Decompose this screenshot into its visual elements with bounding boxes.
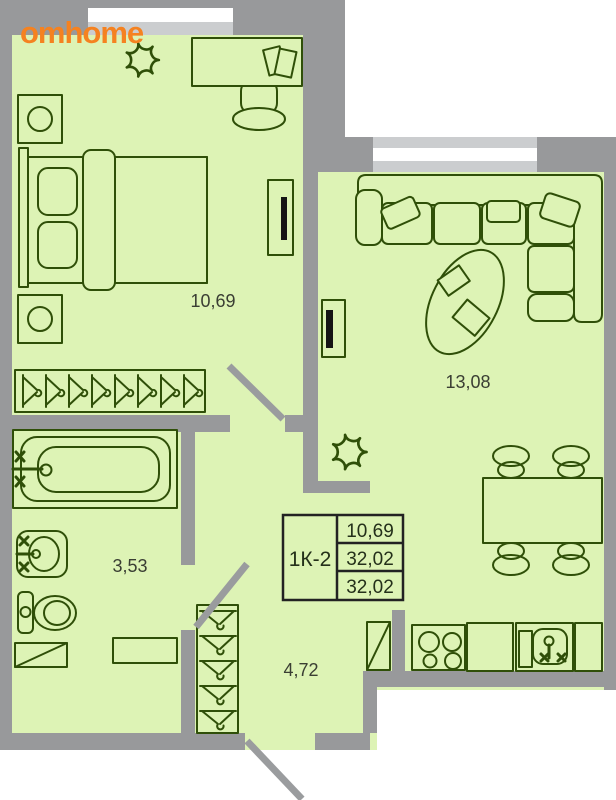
- desk-chair: [233, 80, 285, 130]
- unit-room-area: 10,69: [346, 521, 394, 542]
- floorplan-page: 1К-2 10,69 32,02 32,02 10,69 13,08 3,53 …: [0, 0, 616, 800]
- brand-logo: omhome: [20, 15, 144, 50]
- living-area-label: 13,08: [445, 372, 490, 392]
- bath-mat: [113, 638, 177, 663]
- washbasin: [17, 531, 67, 577]
- bathtub: [13, 430, 177, 508]
- washing-machine: [15, 643, 67, 667]
- living-window: [373, 137, 537, 172]
- kitchen-units: [412, 623, 602, 671]
- bedroom-tv: [268, 180, 293, 255]
- utility-cabinet: [367, 622, 390, 670]
- kitchen-cabinet: [575, 623, 602, 671]
- bedroom-wardrobe: [15, 370, 205, 412]
- hallway-area-label: 4,72: [283, 660, 318, 680]
- counter: [467, 623, 513, 671]
- unit-info-table: 1К-2 10,69 32,02 32,02: [283, 515, 403, 600]
- double-bed: [19, 148, 207, 290]
- bedroom-area-label: 10,69: [190, 291, 235, 311]
- living-tv: [322, 300, 345, 357]
- unit-type-label: 1К-2: [289, 548, 332, 571]
- kitchen-sink: [516, 623, 573, 671]
- unit-full-area: 32,02: [346, 577, 394, 598]
- stove: [412, 625, 465, 670]
- desk: [192, 38, 302, 86]
- hall-wardrobe: [197, 605, 238, 733]
- floorplan-drawing: 1К-2 10,69 32,02 32,02 10,69 13,08 3,53 …: [0, 0, 616, 800]
- bathroom-area-label: 3,53: [112, 556, 147, 576]
- unit-total-area: 32,02: [346, 549, 394, 570]
